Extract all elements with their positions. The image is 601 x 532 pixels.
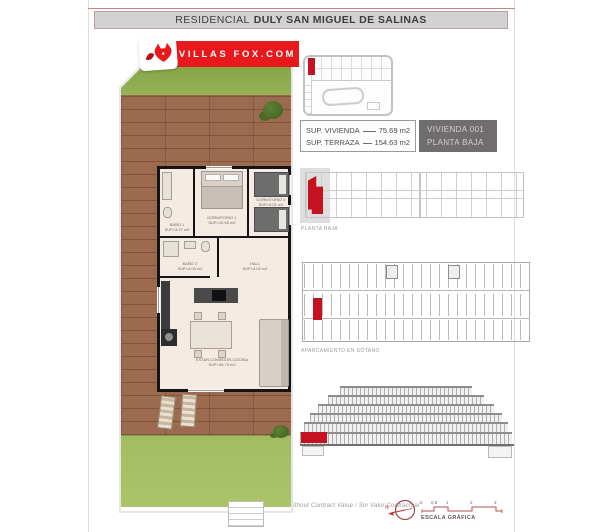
- wall: [247, 169, 249, 237]
- page-title: RESIDENCIAL DULY SAN MIGUEL DE SALINAS: [94, 11, 508, 29]
- scale-label: ESCALA GRÁFICA: [421, 515, 476, 521]
- pool-outline: [321, 87, 364, 107]
- chair: [218, 312, 226, 320]
- sink: [184, 241, 196, 249]
- double-bed: [201, 171, 243, 209]
- parking-stalls: [304, 264, 528, 288]
- garden-steps: [228, 501, 264, 527]
- sup-vivienda-value: 75.69 m2: [379, 126, 410, 135]
- room-label-dormitorio-2: DORMITORIO 2SUP=9.01 m2: [256, 197, 285, 207]
- stair-core: [448, 265, 460, 279]
- floor-plan-inner: DORMITORIO 1SUP=10.55 m2 DORMITORIO 2SUP…: [121, 63, 291, 511]
- room-label-estar-comedor-cocina: ESTAR-COMEDOR-COCINASUP=28.73 m2: [196, 357, 248, 367]
- wall: [217, 238, 219, 277]
- stair-core: [386, 265, 398, 279]
- title-prefix: RESIDENCIAL: [175, 14, 249, 26]
- small-structure: [367, 102, 380, 110]
- parking-plan: [300, 262, 530, 346]
- sup-vivienda-label: SUP. VIVIENDA: [306, 126, 360, 135]
- wall: [160, 236, 288, 238]
- unit-number: VIVIENDA 001: [427, 125, 497, 134]
- parking-stalls: [304, 294, 528, 316]
- site-plan: [300, 168, 528, 223]
- svg-text:1: 1: [446, 500, 449, 505]
- garden-lawn-bottom: [121, 435, 291, 507]
- wall: [193, 169, 195, 237]
- block-units-row: [311, 57, 391, 81]
- svg-text:0: 0: [420, 500, 423, 505]
- dining-table: [190, 321, 232, 349]
- svg-text:3: 3: [494, 500, 497, 505]
- terrace-door: [188, 389, 224, 392]
- site-plan-label: PLANTA BAJA: [301, 226, 338, 232]
- single-bed: [254, 172, 289, 197]
- room-label-bano-1: BAÑO 1SUP=3.97 m2: [164, 222, 189, 232]
- ground-line: [300, 444, 514, 446]
- highlighted-unit: [308, 58, 315, 75]
- graphic-scale-bar: 0 0.5 1 2 3: [420, 499, 504, 515]
- kitchen-counter: [161, 281, 170, 329]
- sofa: [259, 319, 289, 387]
- kitchen-island: [194, 288, 238, 303]
- highlighted-parking-space: [313, 298, 322, 320]
- parking-plan-label: APARCAMIENTO EN SÓTANO: [301, 348, 380, 354]
- bush-icon: [273, 425, 289, 438]
- unit-id-box: VIVIENDA 001 PLANTA BAJA: [419, 120, 497, 152]
- toilet: [201, 241, 210, 252]
- parking-stalls: [304, 320, 528, 340]
- block-overview-plan: [303, 55, 393, 116]
- room-label-bano-2: BAÑO 2SUP=4.03 m2: [177, 261, 202, 271]
- wall: [160, 276, 210, 278]
- sup-terraza-row: SUP. TERRAZA 154.63 m2: [306, 138, 410, 147]
- page-border-left: [88, 0, 89, 532]
- sup-terraza-label: SUP. TERRAZA: [306, 138, 360, 147]
- highlighted-unit: [301, 432, 327, 443]
- window: [206, 166, 232, 169]
- sun-lounger: [180, 394, 197, 428]
- building-outline: [305, 172, 524, 218]
- chair: [194, 312, 202, 320]
- fox-icon: [142, 41, 174, 67]
- villasfox-logo-text[interactable]: VILLAS FOX.COM: [176, 41, 299, 67]
- bathroom-counter: [162, 172, 172, 200]
- north-compass-icon: N: [384, 496, 420, 526]
- header-accent-line: [88, 8, 515, 9]
- shower: [163, 241, 179, 257]
- building-elevation: [300, 386, 512, 464]
- cooktop: [212, 290, 226, 301]
- page: RESIDENCIAL DULY SAN MIGUEL DE SALINAS V…: [0, 0, 601, 532]
- title-main: DULY SAN MIGUEL DE SALINAS: [254, 14, 427, 26]
- bush-icon: [263, 101, 283, 119]
- svg-text:2: 2: [470, 500, 473, 505]
- room-label-hall: HALLSUP=4.02 m2: [242, 261, 267, 271]
- block-units-side: [305, 81, 312, 114]
- toilet: [163, 207, 172, 218]
- terrace-door: [157, 287, 160, 313]
- floor-plan: DORMITORIO 1SUP=10.55 m2 DORMITORIO 2SUP…: [119, 61, 293, 513]
- apartment-interior: DORMITORIO 1SUP=10.55 m2 DORMITORIO 2SUP…: [157, 166, 291, 392]
- single-bed: [254, 207, 289, 232]
- villasfox-logo-badge: [138, 37, 178, 72]
- sup-terraza-value: 154.63 m2: [375, 138, 410, 147]
- unit-floor: PLANTA BAJA: [427, 138, 497, 147]
- surface-summary-box: SUP. VIVIENDA 75.69 m2 SUP. TERRAZA 154.…: [300, 120, 416, 152]
- room-label-dormitorio-1: DORMITORIO 1SUP=10.55 m2: [207, 215, 236, 225]
- washing-machine: [161, 329, 177, 346]
- sup-vivienda-row: SUP. VIVIENDA 75.69 m2: [306, 126, 410, 135]
- svg-text:0.5: 0.5: [431, 500, 438, 505]
- north-label: N: [385, 505, 389, 511]
